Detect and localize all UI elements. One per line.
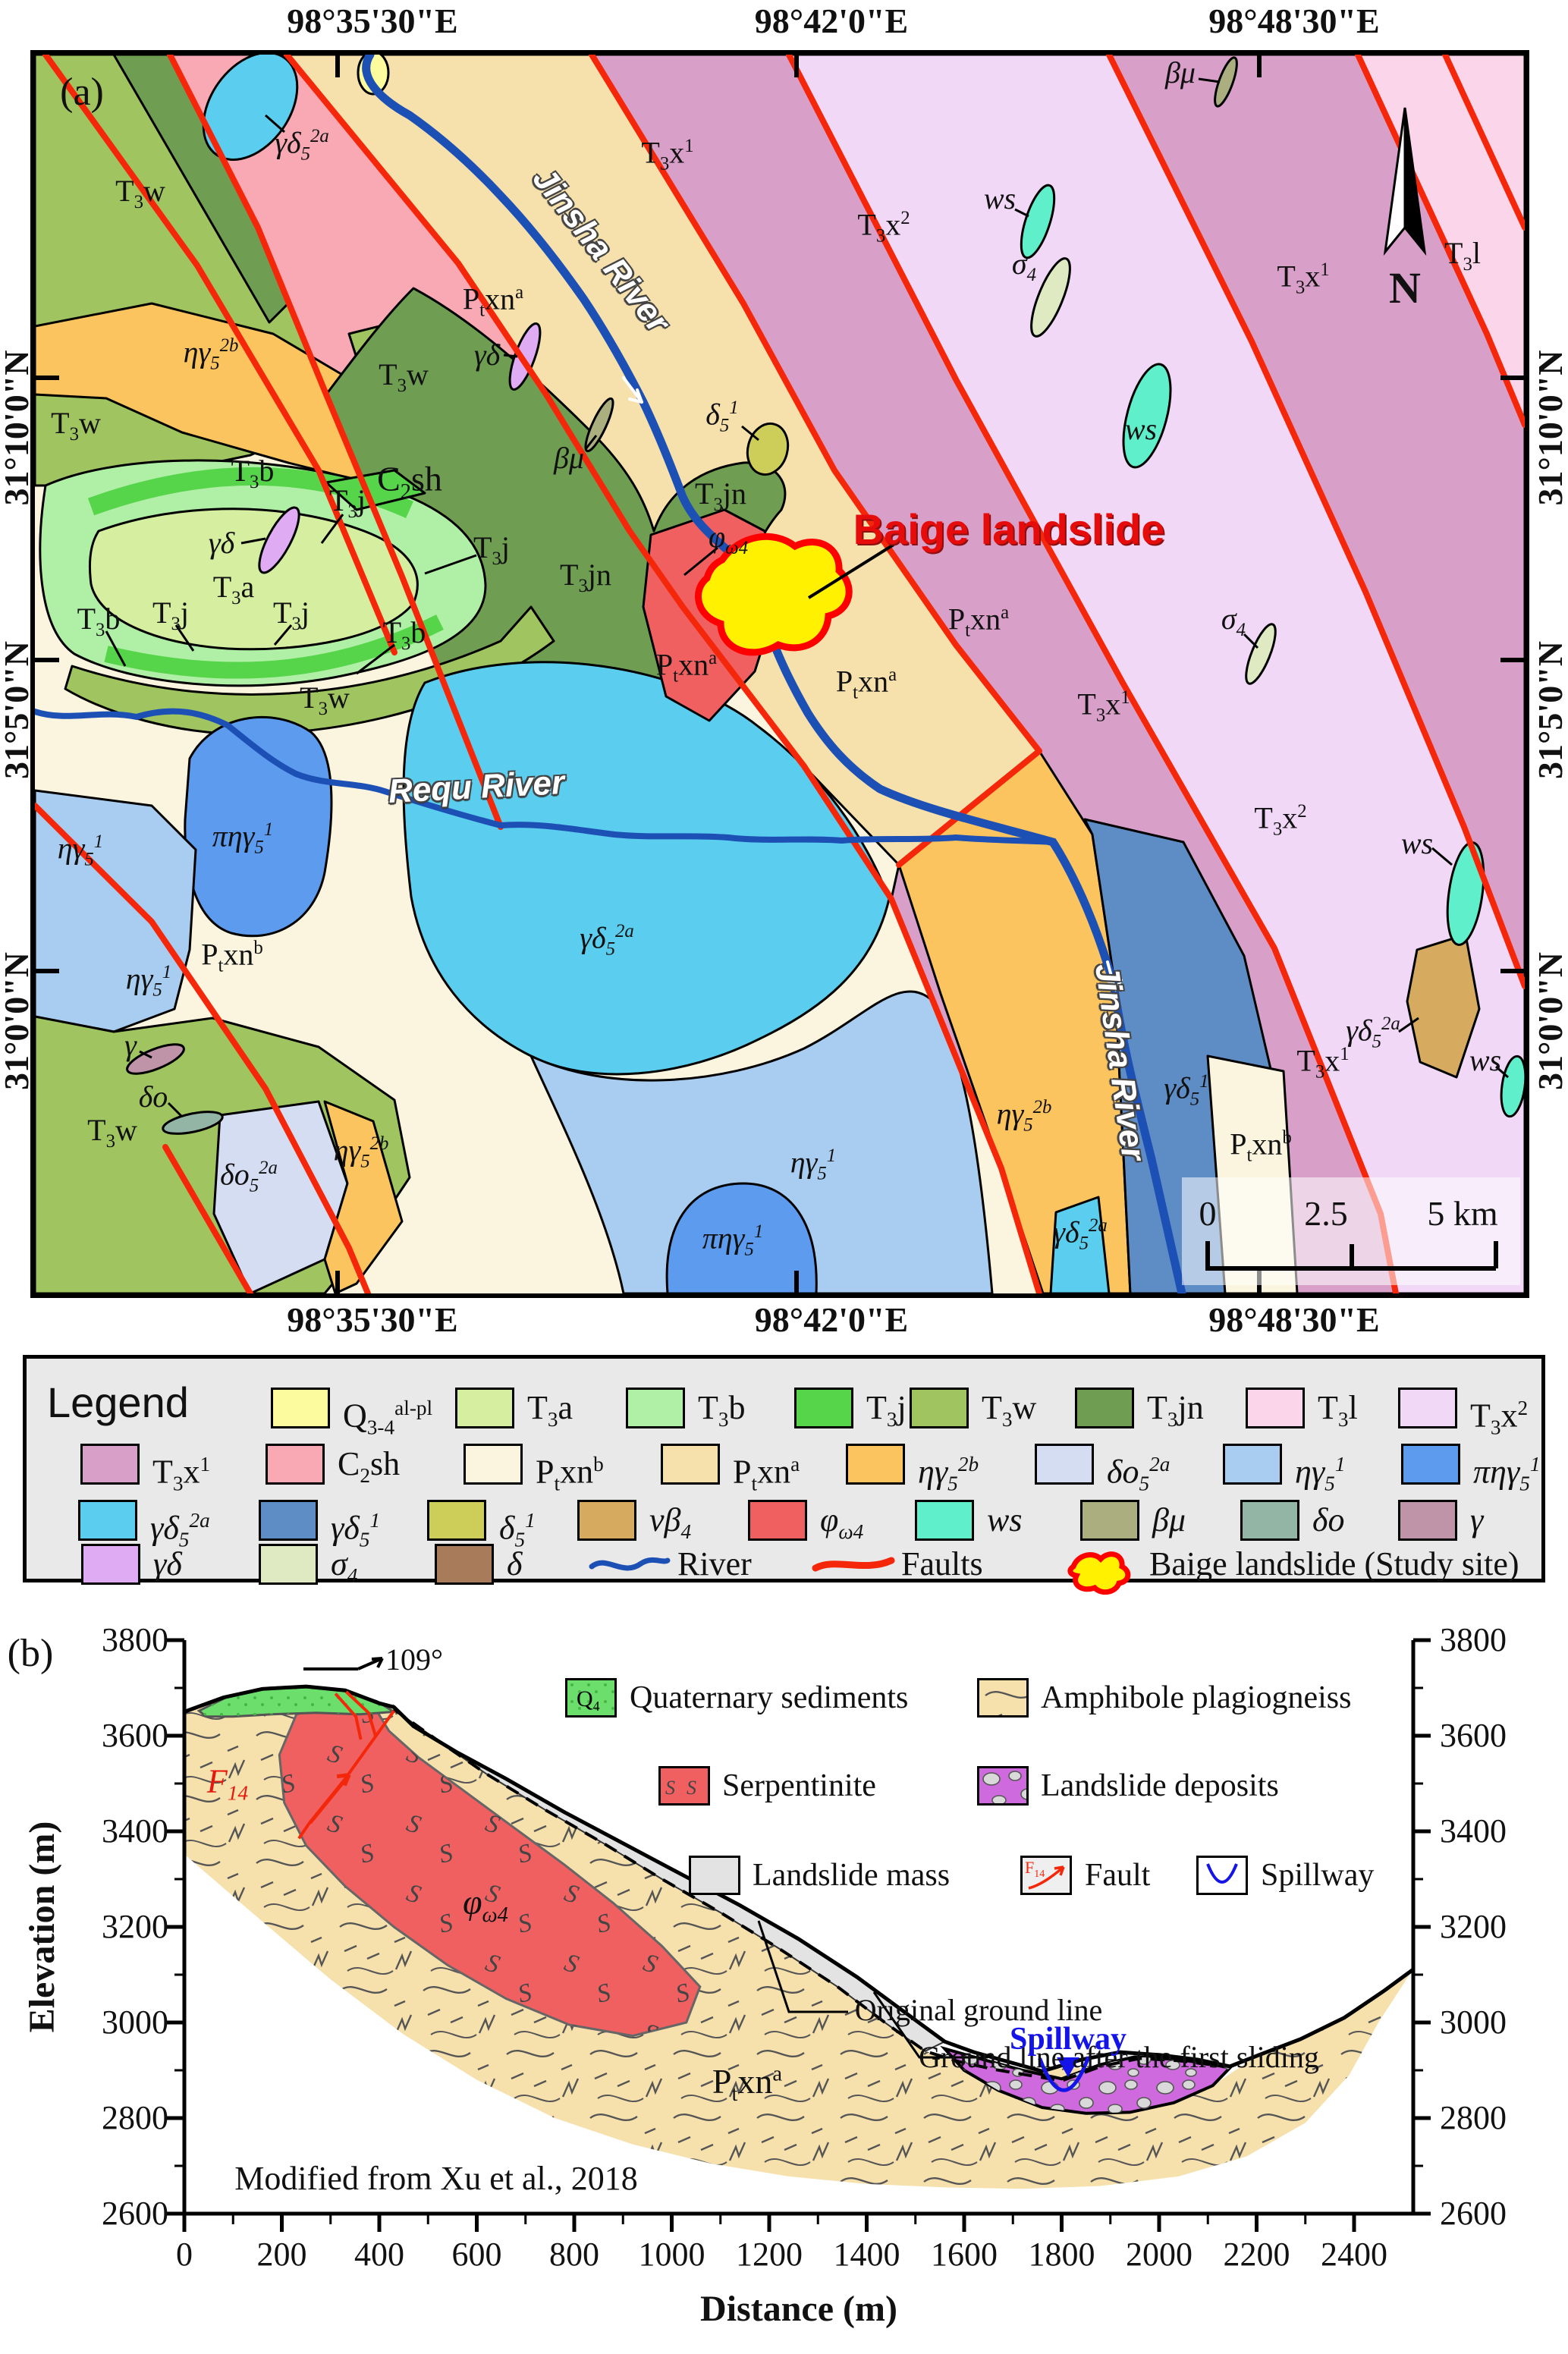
legend-label-T3a: T3a (527, 1388, 573, 1440)
legend-swatch-fault-symbol (812, 1544, 895, 1585)
legend-label-eta1: ηγ51 (1295, 1444, 1345, 1504)
xsec-quaternary-texture (199, 1686, 394, 1717)
legend-label-pieta1: πηγ51 (1473, 1444, 1541, 1504)
legend-label-do52a: δo52a (1107, 1444, 1170, 1504)
legend-title: Legend (47, 1378, 189, 1427)
xsec-legend-swatch-gneiss (977, 1678, 1029, 1718)
xsec-legend-label-spillb: Spillway (1261, 1856, 1374, 1895)
legend-label-eta2b: ηγ52b (918, 1444, 979, 1504)
legend-swatch-baige-symbol (1060, 1544, 1143, 1585)
xsec-legend-swatch-serp: SS (658, 1766, 710, 1806)
legend-label-T3b: T3b (698, 1388, 746, 1440)
legend-label-s4: σ4 (331, 1544, 357, 1596)
legend-label-Q: Q3-4al-pl (343, 1388, 432, 1447)
xsec-legend-label-q4: Quaternary sediments (630, 1678, 908, 1718)
xsec-legend-label-mass: Landslide mass (753, 1856, 950, 1895)
xsec-legend-swatch-spillb (1196, 1856, 1248, 1895)
legend-swatch-T3jn (1075, 1388, 1134, 1428)
xsec-legend-label-gneiss: Amphibole plagiogneiss (1041, 1678, 1351, 1718)
legend-label-Pxnb: Ptxnb (536, 1444, 604, 1504)
legend-swatch-gd51 (259, 1500, 318, 1541)
geologic-map-panel (30, 50, 1529, 1298)
legend-label-bmu: βμ (1152, 1500, 1186, 1541)
legend-label-Pxna: Ptxna (733, 1444, 800, 1504)
xsec-legend-swatch-dep (977, 1766, 1029, 1806)
coord-right-3100n: 31°0'0"N (1533, 952, 1568, 1090)
coord-right-3150n: 31°5'0"N (1533, 641, 1568, 779)
legend-label-T3j: T3j (866, 1388, 907, 1440)
legend-swatch-C2sh (266, 1444, 325, 1485)
legend-box: Q3-4al-plT3aT3bT3jT3wT3jnT3lT3x2T3x1C2sh… (23, 1355, 1545, 1582)
legend-swatch-Q (271, 1388, 330, 1428)
legend-label-delta: δ (507, 1544, 522, 1585)
geologic-map-svg (35, 55, 1525, 1293)
legend-swatch-pieta1 (1401, 1444, 1460, 1485)
legend-swatch-T3x2 (1398, 1388, 1457, 1428)
legend-swatch-do (1240, 1500, 1299, 1541)
coord-bottom-983530e: 98°35'30"E (287, 1303, 457, 1337)
legend-label-fault-symbol: Faults (901, 1544, 983, 1585)
legend-swatch-gd52a (78, 1500, 137, 1541)
legend-swatch-river-symbol (588, 1544, 671, 1585)
xsec-legend-label-serp: Serpentinite (722, 1766, 876, 1806)
legend-swatch-gd (81, 1544, 140, 1585)
coord-top-984830e: 98°48'30"E (1208, 4, 1379, 39)
unit-gd52a-wedge (1051, 1197, 1109, 1293)
legend-swatch-eta2b (846, 1444, 905, 1485)
legend-label-ws: ws (987, 1500, 1022, 1541)
legend-swatch-d51 (427, 1500, 486, 1541)
xsec-legend-swatch-mass (689, 1856, 740, 1895)
legend-swatch-s4 (259, 1544, 318, 1585)
scale-bar (1182, 1177, 1520, 1285)
legend-label-T3jn: T3jn (1147, 1388, 1204, 1440)
coord-left-31100n: 31°10'0"N (0, 350, 34, 506)
legend-label-T3w: T3w (982, 1388, 1036, 1440)
xsec-legend-label-faultb: Fault (1085, 1856, 1150, 1895)
legend-label-river-symbol: River (677, 1544, 752, 1585)
legend-swatch-T3b (626, 1388, 685, 1428)
legend-label-baige-symbol: Baige landslide (Study site) (1149, 1544, 1519, 1585)
coord-bottom-984830e: 98°48'30"E (1208, 1303, 1379, 1337)
xsec-dip-symbol (303, 1658, 382, 1669)
legend-swatch-phi (748, 1500, 807, 1541)
legend-swatch-gamma (1398, 1500, 1457, 1541)
legend-label-C2sh: C2sh (338, 1444, 400, 1496)
legend-swatch-do52a (1035, 1444, 1094, 1485)
legend-swatch-Pxna (661, 1444, 720, 1485)
legend-swatch-nb4 (577, 1500, 636, 1541)
cross-section-drawing (167, 1640, 1431, 2232)
svg-text:S: S (687, 1777, 696, 1799)
legend-label-gd: γδ (153, 1544, 182, 1585)
xsec-legend-label-dep: Landslide deposits (1041, 1766, 1279, 1806)
legend-swatch-bmu (1080, 1500, 1139, 1541)
coord-bottom-98420e: 98°42'0"E (755, 1303, 908, 1337)
legend-label-T3l: T3l (1318, 1388, 1358, 1440)
svg-text:S: S (665, 1777, 675, 1799)
coord-left-3100n: 31°0'0"N (0, 952, 34, 1090)
coord-right-31100n: 31°10'0"N (1533, 350, 1568, 506)
legend-swatch-eta1 (1223, 1444, 1282, 1485)
xsec-legend-swatch-faultb: F14 (1020, 1856, 1072, 1895)
geology-units (35, 55, 1525, 1293)
legend-label-do: δo (1312, 1500, 1344, 1541)
legend-swatch-T3w (910, 1388, 969, 1428)
xsec-legend-swatch-q4: Q4 (565, 1678, 617, 1718)
legend-swatch-delta (435, 1544, 494, 1585)
legend-label-T3x1: T3x1 (152, 1444, 210, 1504)
legend-swatch-T3j (794, 1388, 853, 1428)
legend-swatch-Pxnb (463, 1444, 523, 1485)
legend-label-gamma: γ (1470, 1500, 1483, 1541)
legend-swatch-T3a (455, 1388, 514, 1428)
legend-swatch-T3x1 (80, 1444, 140, 1485)
legend-label-T3x2: T3x2 (1470, 1388, 1528, 1447)
coord-top-98420e: 98°42'0"E (755, 4, 908, 39)
coord-top-983530e: 98°35'30"E (287, 4, 457, 39)
coord-left-3150n: 31°5'0"N (0, 641, 34, 779)
legend-swatch-T3l (1246, 1388, 1305, 1428)
legend-swatch-ws (915, 1500, 974, 1541)
